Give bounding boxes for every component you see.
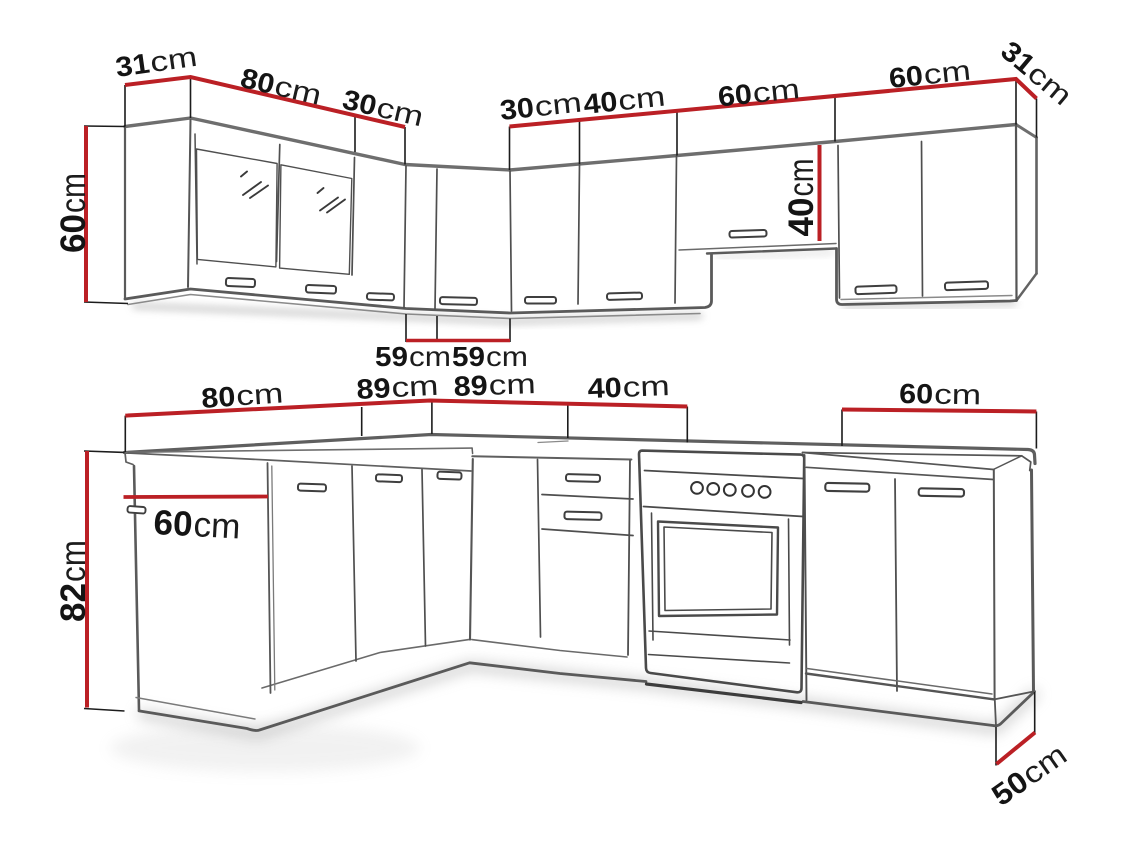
svg-text:89cm: 89cm bbox=[356, 370, 440, 405]
svg-text:60cm: 60cm bbox=[54, 173, 93, 253]
svg-text:60cm: 60cm bbox=[153, 503, 242, 546]
svg-text:30cm: 30cm bbox=[340, 84, 427, 133]
svg-text:40cm: 40cm bbox=[782, 159, 821, 237]
svg-text:80cm: 80cm bbox=[238, 62, 325, 111]
svg-text:59cm59cm: 59cm59cm bbox=[375, 341, 528, 372]
svg-text:40cm: 40cm bbox=[587, 370, 670, 404]
svg-text:60cm: 60cm bbox=[716, 73, 801, 112]
svg-text:60cm: 60cm bbox=[887, 55, 972, 94]
svg-text:80cm: 80cm bbox=[200, 377, 284, 414]
svg-text:50cm: 50cm bbox=[986, 738, 1073, 813]
svg-text:82cm: 82cm bbox=[54, 540, 93, 622]
svg-text:60cm: 60cm bbox=[899, 378, 982, 410]
svg-text:89cm: 89cm bbox=[453, 368, 536, 402]
